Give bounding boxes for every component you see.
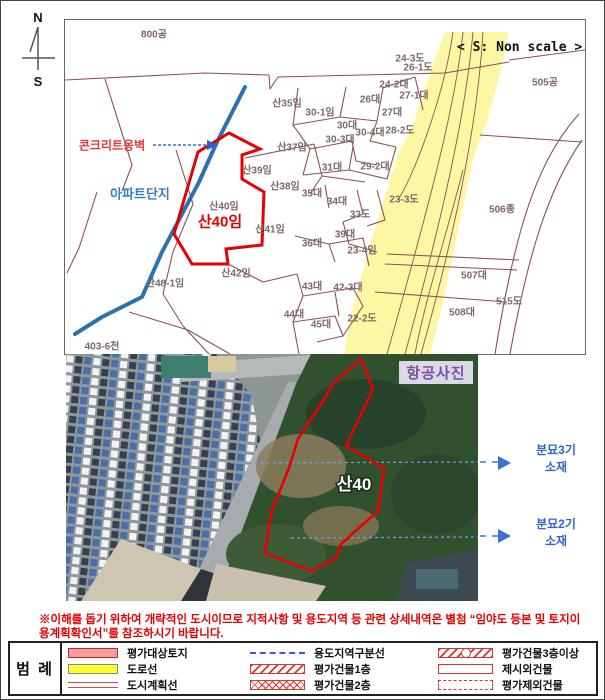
apartment-complex-label: 아파트단지 <box>110 184 170 203</box>
parcel-label: 산41임 <box>255 221 285 236</box>
parcel-label: 33도 <box>350 206 370 221</box>
legend-column: 용도지역구분선평가건물1층평가건물2층 <box>250 646 385 692</box>
legend-item: 평가건물2층 <box>250 678 385 692</box>
legend-title: 범 례 <box>10 643 62 694</box>
aerial-photo-drawing: 산40 <box>66 354 478 601</box>
parcel-label: 27대 <box>382 104 402 119</box>
compass: N S <box>15 6 59 90</box>
parcel-label: 30대 <box>337 117 357 132</box>
parcel-label: 26-1도 <box>403 59 432 74</box>
callout-stub <box>480 461 498 463</box>
parcel-label: 505공 <box>532 74 558 89</box>
subject-parcel-label: 산40임 <box>198 211 242 232</box>
legend-swatch-cityplan <box>68 682 118 688</box>
compass-north-label: N <box>33 10 42 25</box>
legend-swatch-hatch3 <box>438 648 493 658</box>
parcel-label: 28-2도 <box>385 122 414 137</box>
compass-needle-fin <box>30 27 38 52</box>
parcel-label: 31대 <box>322 159 342 174</box>
legend-item: 제시외건물 <box>438 662 579 676</box>
legend-swatch-hatch2 <box>250 680 305 690</box>
parcel-label: 23-3도 <box>389 191 418 206</box>
legend-item-label: 평가건물1층 <box>314 661 371 677</box>
grave-callout-2: 분묘2기 소재 <box>524 516 588 550</box>
parcel-label: 39대 <box>335 226 355 241</box>
grave-callout-1-sub: 소재 <box>524 459 588 476</box>
parcel-label: 30-4대 <box>355 124 384 139</box>
parcel-label: 506종 <box>489 201 515 216</box>
grave-callout-2-title: 분묘2기 <box>524 516 588 533</box>
parcel-label: 34대 <box>327 193 347 208</box>
legend-item-label: 제시외건물 <box>502 661 553 677</box>
legend-column: 평가대상토지도로선도시계획선 <box>68 646 188 692</box>
legend-item: 평가건물1층 <box>250 662 385 676</box>
callout-stub <box>480 535 498 537</box>
parcel-label: 산42임 <box>221 265 251 280</box>
parcel-label: 800공 <box>141 26 167 41</box>
legend-item-label: 도로선 <box>127 661 157 677</box>
legend-swatch-subject <box>68 648 118 658</box>
callout-arrow-icon <box>498 456 511 470</box>
sand-area <box>208 356 236 372</box>
aerial-photo: 산40 항공사진 <box>66 354 478 601</box>
parcel-label: 42-3대 <box>333 279 362 294</box>
legend-column: 평가건물3층이상제시외건물평가제외건물 <box>438 646 579 692</box>
parcel-label: 산39임 <box>242 162 272 177</box>
cadastral-map: 800공산35임30-1임30대30-3대30-4대26대24-2대27-1대2… <box>64 19 586 355</box>
playground <box>161 356 211 378</box>
legend-item-label: 평가대상토지 <box>127 645 188 661</box>
legend-swatch-zoneline <box>250 652 305 654</box>
legend-item-label: 평가건물2층 <box>314 677 371 693</box>
parcel-label: 산48-1임 <box>146 275 184 290</box>
grave-callout-2-sub: 소재 <box>524 533 588 550</box>
legend-swatch-dashed-outline <box>438 680 493 690</box>
building-roof <box>416 569 458 589</box>
parcel-label: 29-2대 <box>360 158 389 173</box>
parcel-label: 23-4임 <box>347 242 376 257</box>
legend-item: 도시계획선 <box>68 678 188 692</box>
parcel-label: 산37임 <box>277 139 307 154</box>
legend-item: 평가건물3층이상 <box>438 646 579 660</box>
legend-item: 평가대상토지 <box>68 646 188 660</box>
parcel-label: 403-6천 <box>85 338 120 353</box>
compass-south-label: S <box>34 74 43 89</box>
legend-item-label: 평가건물3층이상 <box>502 645 579 661</box>
parcel-label: 27-1대 <box>399 87 428 102</box>
legend: 범 례 평가대상토지도로선도시계획선 용도지역구분선평가건물1층평가건물2층 평… <box>8 641 598 696</box>
parcel-label: 산38임 <box>270 178 300 193</box>
notice-text: ※이해를 돕기 위하여 개략적인 도시이므로 지적사항 및 용도지역 등 관련 … <box>39 613 584 642</box>
scale-note: < S: Non scale > <box>457 40 582 55</box>
callout-arrow-icon <box>498 529 511 543</box>
parcel-label: 45대 <box>311 316 331 331</box>
appraisal-map-page: N S 800공산35임30-1임30대30-3대30-4대26대24-2대27… <box>0 0 605 700</box>
concrete-wall-label: 콘크리트옹벽 <box>79 137 145 154</box>
grave-callout-1: 분묘3기 소재 <box>524 442 588 476</box>
grave-callout-1-title: 분묘3기 <box>524 442 588 459</box>
parcel-label: 43대 <box>302 278 322 293</box>
parcel-label: 30-1임 <box>305 104 334 119</box>
parcel-label: 26대 <box>360 91 380 106</box>
legend-item: 용도지역구분선 <box>250 646 385 660</box>
parcel-label: 36대 <box>302 235 322 250</box>
parcel-label: 44대 <box>284 306 304 321</box>
forest-texture <box>391 454 478 534</box>
legend-item-label: 평가제외건물 <box>502 677 563 693</box>
aerial-photo-title: 항공사진 <box>399 361 473 384</box>
photo-parcel-label: 산40 <box>337 475 372 494</box>
parcel-label: 507대 <box>461 267 487 282</box>
clearing <box>303 506 379 546</box>
legend-item: 도로선 <box>68 662 188 676</box>
legend-swatch-road <box>68 664 118 674</box>
legend-item-label: 용도지역구분선 <box>314 645 385 661</box>
parcel-label: 22-2도 <box>347 310 376 325</box>
legend-swatch-hatch1 <box>250 664 305 674</box>
parcel-label: 산35임 <box>272 95 302 110</box>
parcel-label: 35대 <box>302 185 322 200</box>
parcel-label: 515도 <box>496 293 522 308</box>
legend-swatch-outline <box>438 664 493 674</box>
parcel-label: 30-3대 <box>325 131 354 146</box>
clearing <box>256 434 346 498</box>
legend-item: 평가제외건물 <box>438 678 579 692</box>
parcel-label: 508대 <box>449 304 475 319</box>
legend-item-label: 도시계획선 <box>127 677 178 693</box>
